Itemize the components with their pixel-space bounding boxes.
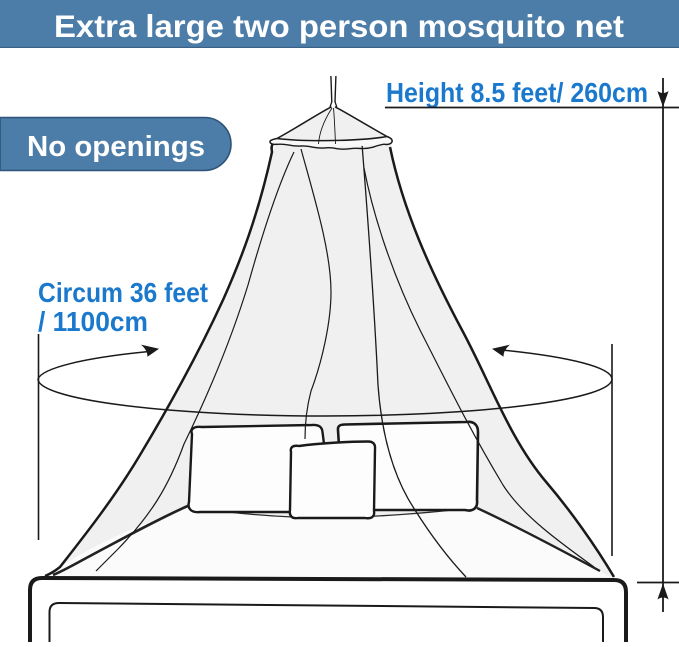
svg-text:Circum 36 feet: Circum 36 feet [38, 277, 208, 308]
svg-text:/ 1100cm: / 1100cm [38, 306, 148, 337]
svg-text:Extra large two person mosquit: Extra large two person mosquito net [54, 8, 625, 44]
svg-text:No openings: No openings [27, 131, 205, 163]
svg-text:Height 8.5 feet/ 260cm: Height 8.5 feet/ 260cm [386, 77, 648, 108]
